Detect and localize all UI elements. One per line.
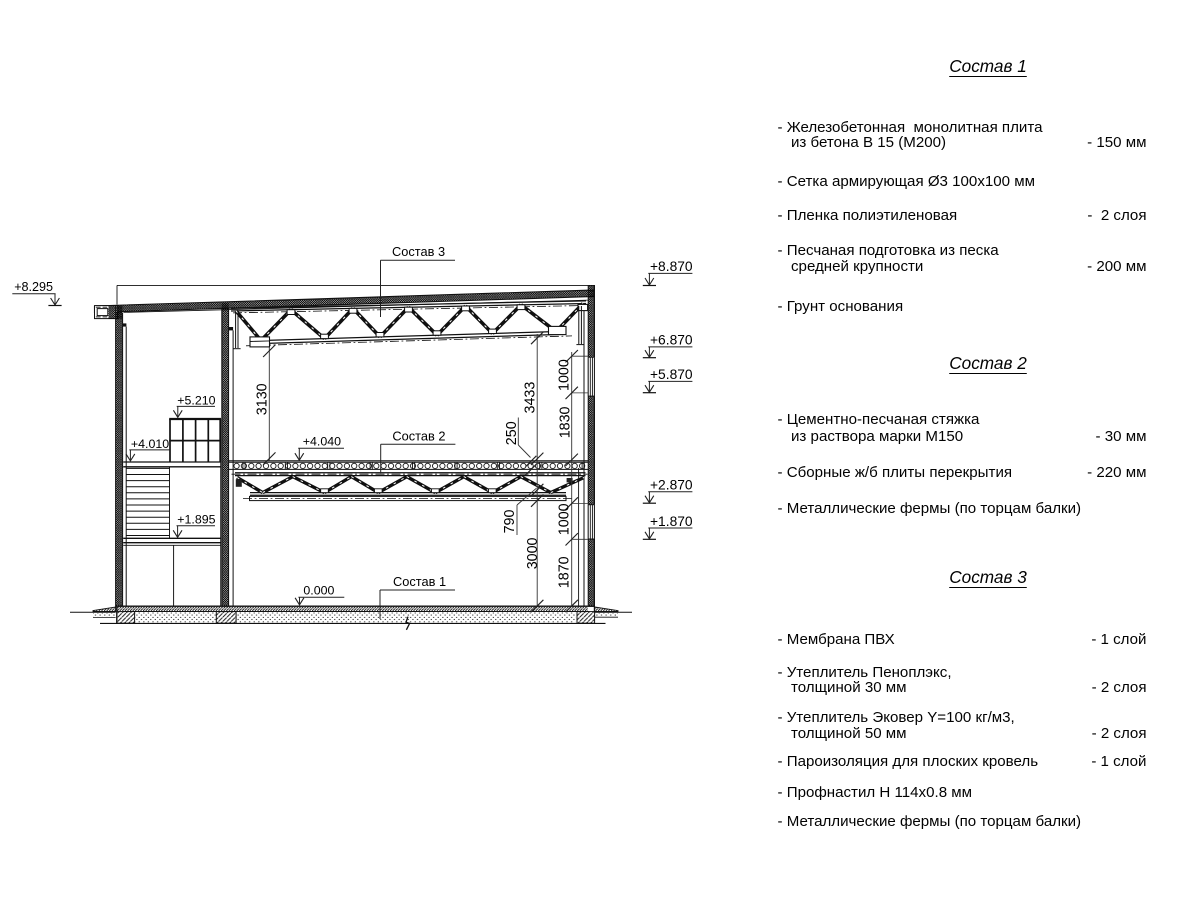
svg-text:+8.295: +8.295 <box>14 280 53 294</box>
svg-text:790: 790 <box>502 509 518 533</box>
svg-text:+5.210: +5.210 <box>177 394 215 408</box>
svg-text:1870: 1870 <box>557 556 573 588</box>
svg-text:250: 250 <box>504 421 520 445</box>
svg-text:1000: 1000 <box>557 503 573 535</box>
svg-text:0.000: 0.000 <box>303 584 334 598</box>
svg-text:+1.895: +1.895 <box>177 513 215 527</box>
svg-text:Состав 2: Состав 2 <box>392 428 445 443</box>
svg-text:+4.040: +4.040 <box>303 435 341 449</box>
svg-text:+4.010: +4.010 <box>131 437 169 451</box>
svg-text:3130: 3130 <box>254 383 270 415</box>
svg-text:Состав 3: Состав 3 <box>392 244 445 259</box>
svg-text:+6.870: +6.870 <box>650 333 693 348</box>
svg-text:1830: 1830 <box>557 406 573 438</box>
svg-text:Состав 1: Состав 1 <box>393 574 446 589</box>
svg-text:+8.870: +8.870 <box>650 259 693 274</box>
svg-text:+1.870: +1.870 <box>650 514 693 529</box>
svg-text:+2.870: +2.870 <box>650 478 693 493</box>
svg-text:3433: 3433 <box>523 382 539 414</box>
svg-text:1000: 1000 <box>557 359 573 391</box>
svg-text:+5.870: +5.870 <box>650 367 693 382</box>
svg-text:3000: 3000 <box>525 537 541 569</box>
